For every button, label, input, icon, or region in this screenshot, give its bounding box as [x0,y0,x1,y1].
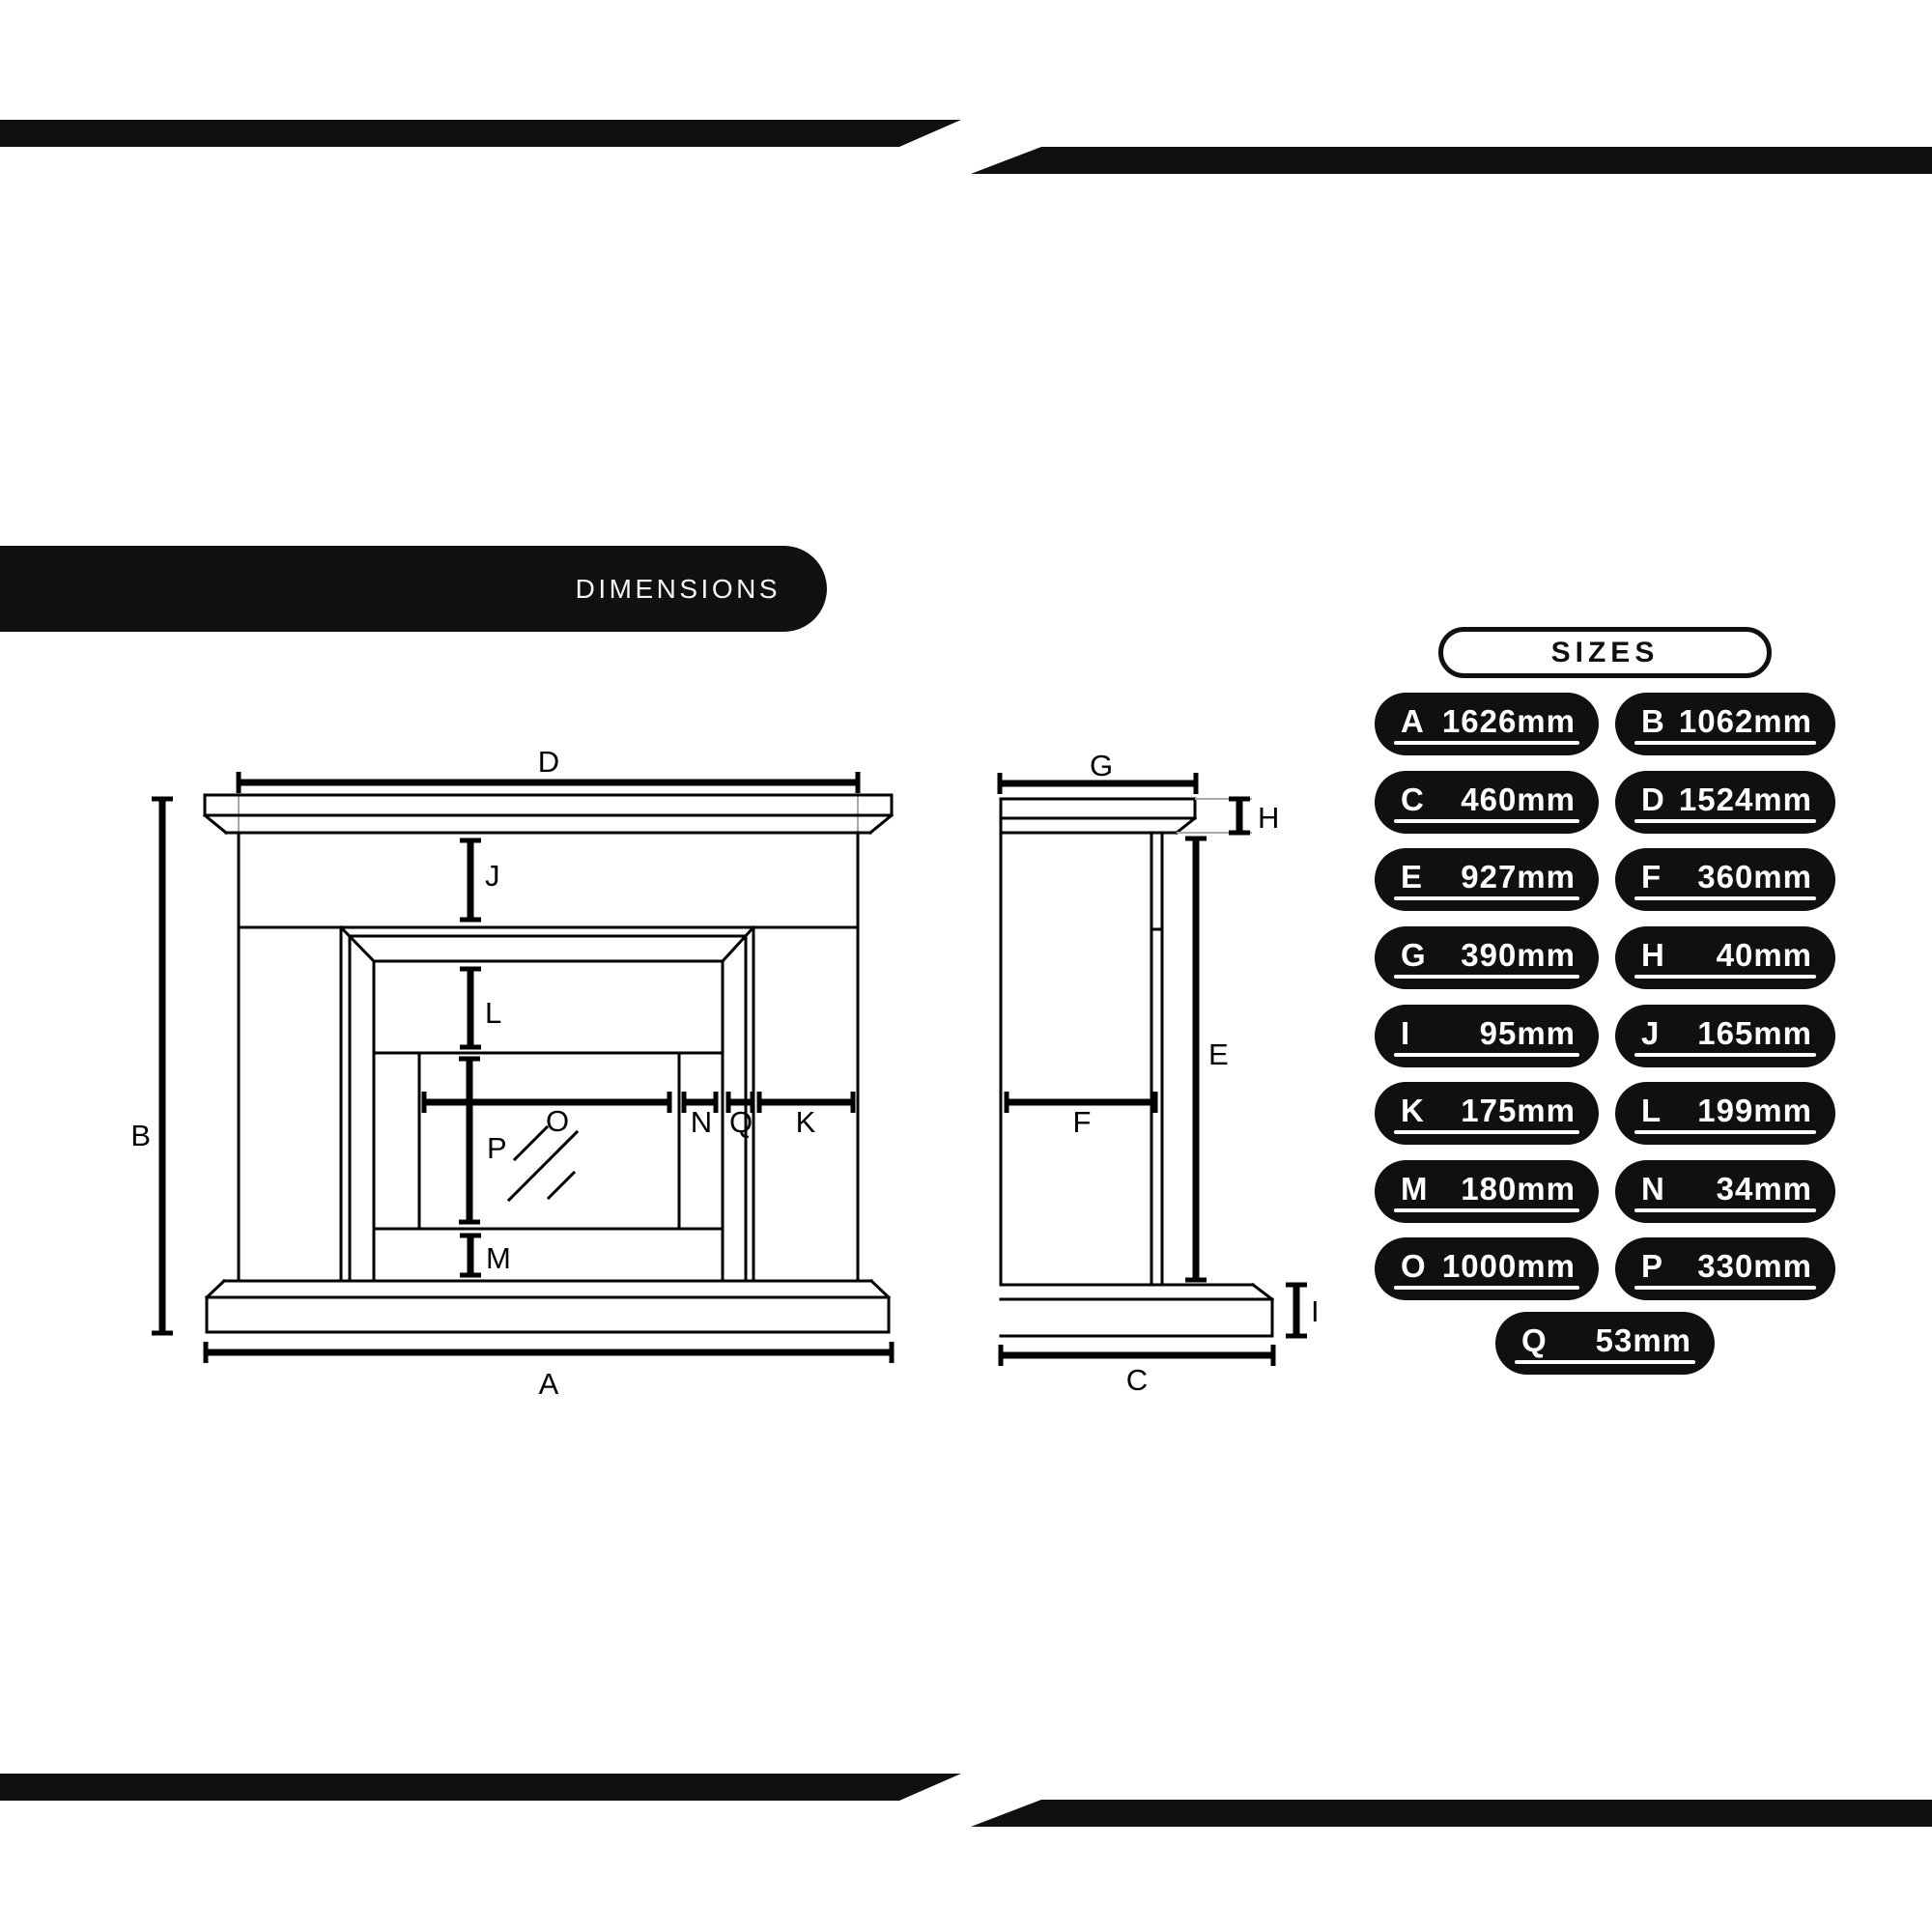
size-badge-l-underline [1634,1130,1816,1134]
size-badge-m-letter: M [1401,1171,1428,1207]
size-badge-n: N 34mm [1615,1160,1835,1223]
size-badge-a-underline [1394,741,1579,745]
front-label-d: D [538,745,559,779]
size-badge-d-value: 1524mm [1679,781,1812,818]
size-badge-g-letter: G [1401,937,1426,974]
front-view-drawing [205,784,892,1332]
firebox-glass-hatch [509,1127,577,1200]
decor-bar-top-left [0,120,961,147]
front-label-l: L [485,996,501,1030]
size-badge-p-letter: P [1641,1248,1662,1285]
size-badge-c-letter: C [1401,781,1424,818]
size-badge-b-underline [1634,741,1816,745]
size-badge-d: D 1524mm [1615,771,1835,834]
size-badge-f-letter: F [1641,859,1661,895]
side-label-g: G [1090,749,1113,782]
front-label-a: A [539,1367,559,1401]
size-badge-p-value: 330mm [1697,1248,1812,1285]
front-label-m: M [486,1241,511,1275]
front-label-o: O [546,1104,569,1138]
sizes-title-label: SIZES [1551,637,1660,669]
size-badge-d-underline [1634,819,1816,823]
size-badge-b-letter: B [1641,703,1664,740]
front-label-j: J [485,859,500,893]
side-label-c: C [1126,1363,1148,1397]
size-badge-a: A 1626mm [1375,693,1599,755]
side-label-i: I [1311,1294,1320,1328]
size-badge-j-value: 165mm [1697,1015,1812,1052]
size-badge-g-value: 390mm [1461,937,1576,974]
size-badge-c-value: 460mm [1461,781,1576,818]
size-badge-k-letter: K [1401,1093,1424,1129]
size-badge-l: L 199mm [1615,1082,1835,1145]
size-badge-h-underline [1634,975,1816,979]
size-badge-q-underline [1515,1360,1695,1364]
decor-bar-bottom-left [0,1774,961,1801]
size-badge-j-letter: J [1641,1015,1659,1052]
size-badge-k-value: 175mm [1461,1093,1576,1129]
front-label-p: P [487,1131,507,1165]
size-badge-h-value: 40mm [1717,937,1812,974]
size-badge-k: K 175mm [1375,1082,1599,1145]
size-badge-m: M 180mm [1375,1160,1599,1223]
size-badge-e-letter: E [1401,859,1422,895]
page: { "page": { "background": "#ffffff", "in… [0,0,1932,1932]
size-badge-m-value: 180mm [1461,1171,1576,1207]
size-badge-f-value: 360mm [1697,859,1812,895]
size-badge-q-letter: Q [1521,1322,1547,1359]
size-badge-i: I 95mm [1375,1005,1599,1067]
decor-bar-bottom-right [971,1800,1932,1827]
size-badge-q-value: 53mm [1596,1322,1691,1359]
size-badge-f-underline [1634,896,1816,900]
size-badge-e-underline [1394,896,1579,900]
side-label-h: H [1258,801,1279,835]
size-badge-o: O 1000mm [1375,1237,1599,1300]
size-badge-k-underline [1394,1130,1579,1134]
front-label-n: N [691,1105,712,1139]
size-badge-e: E 927mm [1375,848,1599,911]
size-badge-h-letter: H [1641,937,1664,974]
front-label-b: B [130,1119,151,1152]
front-label-q: Q [729,1105,753,1139]
side-view-dimensions [1000,773,1307,1366]
dimensions-banner-label: DIMENSIONS [576,574,781,605]
size-badge-a-letter: A [1401,703,1424,740]
size-badge-f: F 360mm [1615,848,1835,911]
size-badge-q: Q 53mm [1495,1312,1715,1375]
size-badge-p-underline [1634,1286,1816,1290]
size-badge-e-value: 927mm [1461,859,1576,895]
size-badge-o-value: 1000mm [1442,1248,1576,1285]
size-badge-i-value: 95mm [1480,1015,1576,1052]
decor-bar-top-right [971,147,1932,174]
size-badge-c-underline [1394,819,1579,823]
size-badge-l-letter: L [1641,1093,1661,1129]
size-badge-l-value: 199mm [1697,1093,1812,1129]
size-badge-o-underline [1394,1286,1579,1290]
size-badge-n-underline [1634,1208,1816,1212]
size-badge-i-underline [1394,1053,1579,1057]
size-badge-g: G 390mm [1375,926,1599,989]
size-badge-d-letter: D [1641,781,1664,818]
size-badge-b: B 1062mm [1615,693,1835,755]
front-label-k: K [796,1105,816,1139]
size-badge-a-value: 1626mm [1442,703,1576,740]
front-view-dimensions [152,772,892,1363]
size-badge-h: H 40mm [1615,926,1835,989]
dimensions-banner: DIMENSIONS [0,546,827,632]
side-label-f: F [1073,1105,1092,1139]
fireplace-dimension-drawing: D B A J L P M O N Q K [97,744,1352,1410]
size-badge-j-underline [1634,1053,1816,1057]
side-view-drawing [1001,799,1272,1336]
size-badge-n-letter: N [1641,1171,1664,1207]
size-badge-o-letter: O [1401,1248,1426,1285]
size-badge-c: C 460mm [1375,771,1599,834]
side-label-e: E [1208,1037,1229,1071]
size-badge-b-value: 1062mm [1679,703,1812,740]
size-badge-m-underline [1394,1208,1579,1212]
size-badge-i-letter: I [1401,1015,1409,1052]
size-badge-j: J 165mm [1615,1005,1835,1067]
sizes-title-pill: SIZES [1438,627,1772,678]
size-badge-g-underline [1394,975,1579,979]
size-badge-p: P 330mm [1615,1237,1835,1300]
size-badge-n-value: 34mm [1717,1171,1812,1207]
